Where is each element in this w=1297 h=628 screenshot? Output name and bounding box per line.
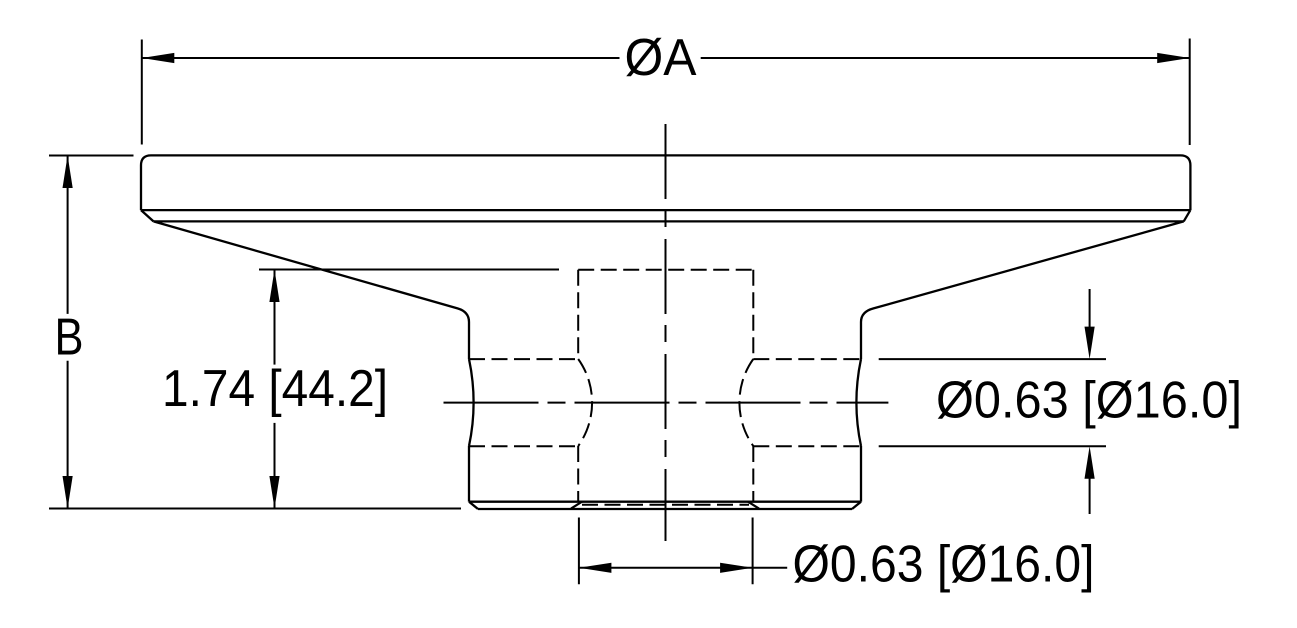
svg-text:Ø0.63 [Ø16.0]: Ø0.63 [Ø16.0] — [793, 536, 1095, 594]
svg-text:ØA: ØA — [625, 29, 697, 87]
svg-text:1.74 [44.2]: 1.74 [44.2] — [162, 360, 388, 418]
svg-text:Ø0.63 [Ø16.0]: Ø0.63 [Ø16.0] — [936, 371, 1242, 429]
svg-text:B: B — [55, 309, 84, 367]
